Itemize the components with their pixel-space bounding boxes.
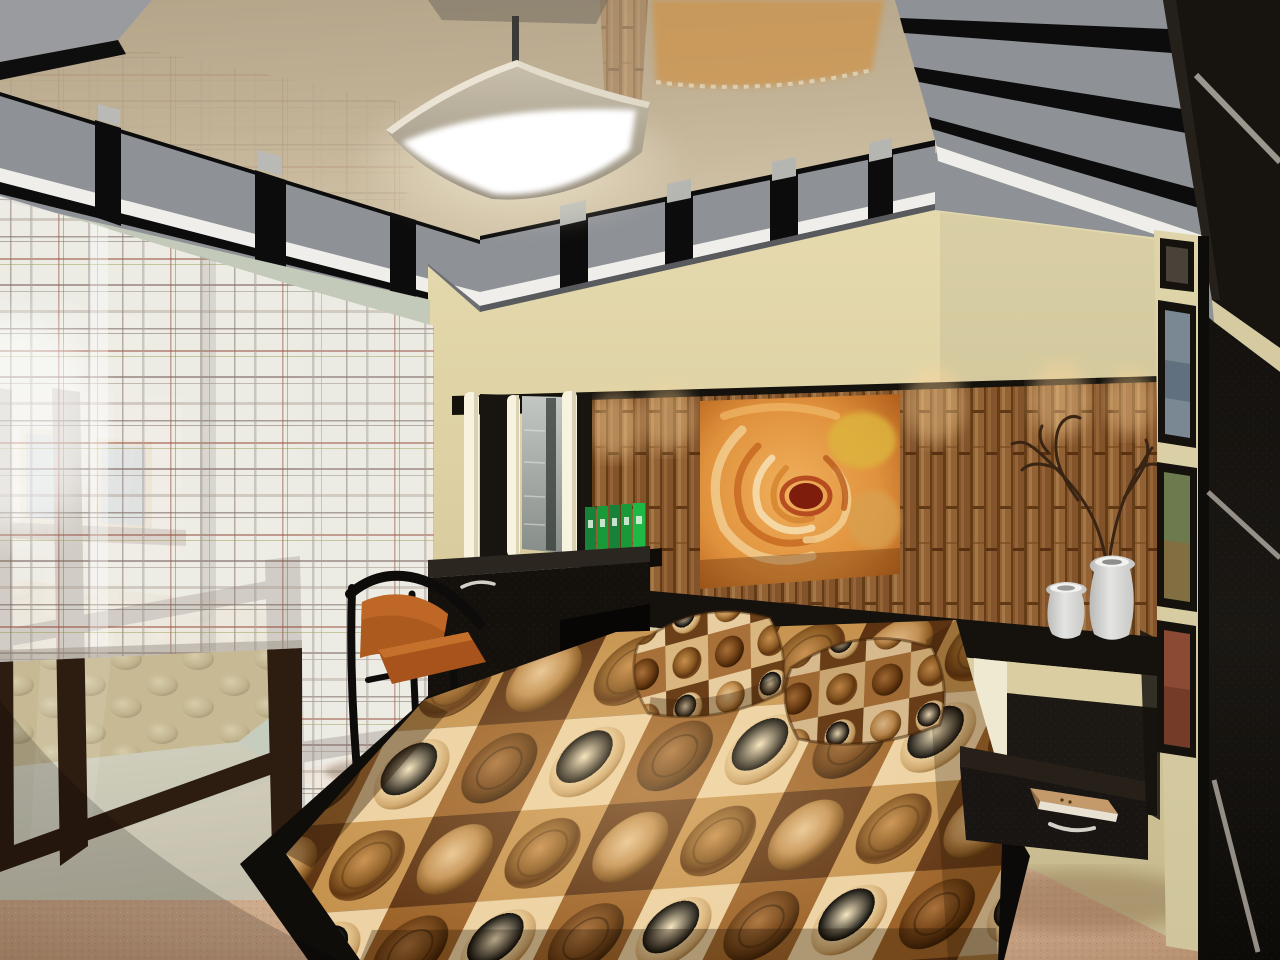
picture-frame-3	[1157, 620, 1196, 758]
picture-frame-0	[1160, 238, 1194, 292]
lamp-stem	[512, 16, 519, 66]
rose-artwork	[700, 394, 900, 589]
wardrobe	[1198, 236, 1280, 960]
picture-frame-2	[1157, 462, 1197, 612]
bedroom-render-stage	[0, 0, 1280, 960]
rose-artwork-reflection	[652, 0, 884, 87]
dressing-mirror-unit	[464, 391, 592, 567]
wardrobe-edge	[1198, 236, 1209, 960]
small-vase	[1046, 582, 1087, 639]
mirror	[522, 396, 564, 553]
picture-frame-1	[1158, 300, 1196, 448]
bedroom-render	[0, 0, 1280, 960]
tall-vase	[1090, 556, 1136, 640]
